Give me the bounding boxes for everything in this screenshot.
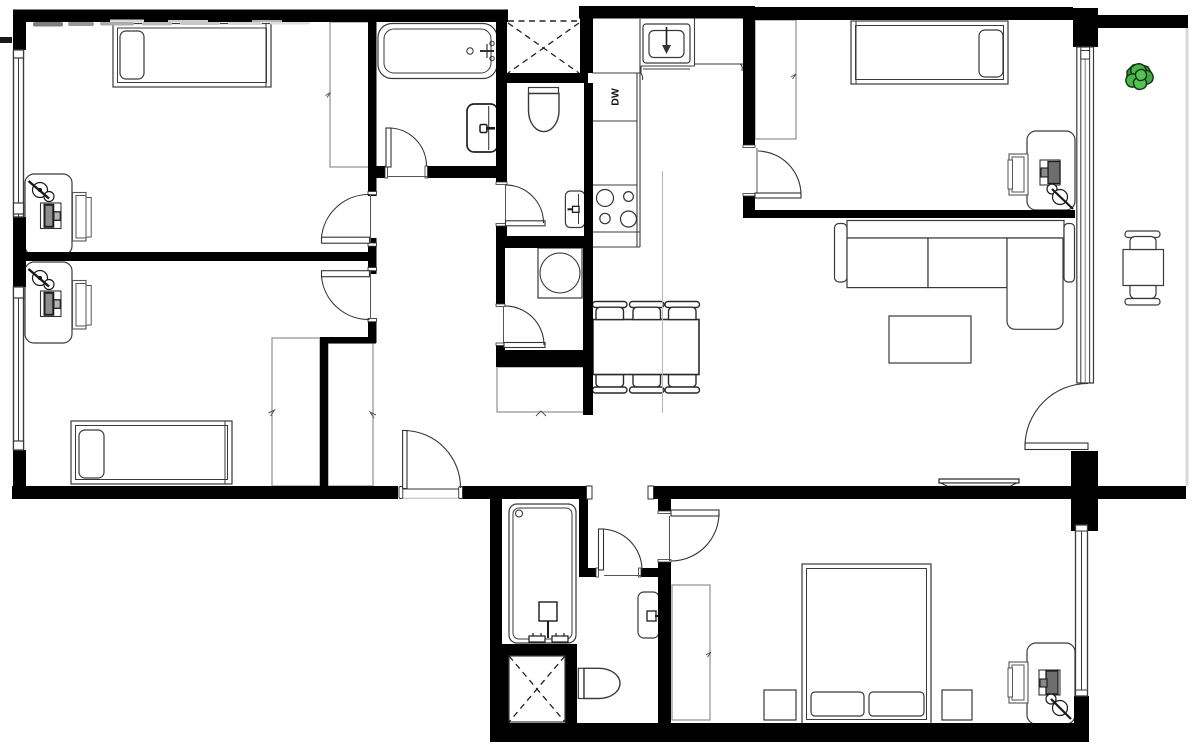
- svg-text:DW: DW: [610, 88, 622, 106]
